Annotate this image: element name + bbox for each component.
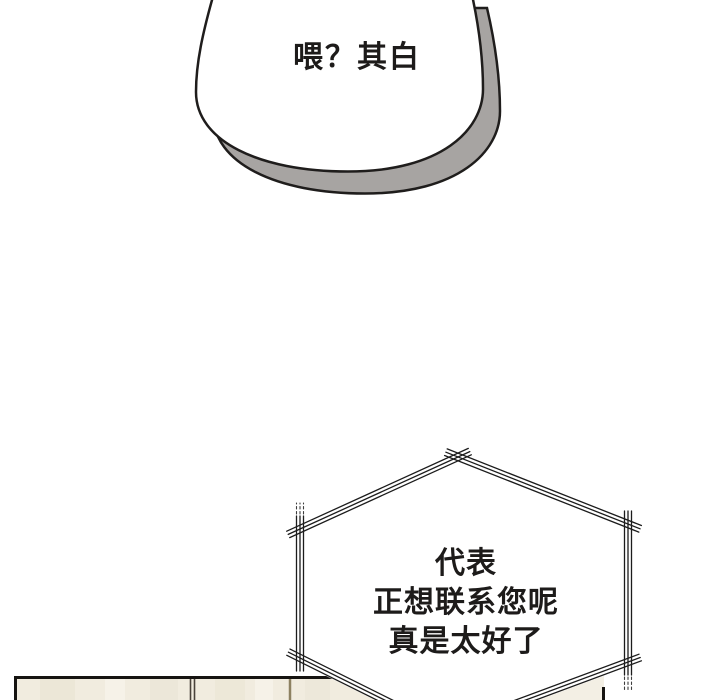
phone-speech-bubble xyxy=(196,0,500,194)
bubble-body xyxy=(196,0,483,172)
panel-texture xyxy=(105,679,125,700)
comic-page: 喂？其白 代表 正想联系您呢 真是太好了 xyxy=(0,0,720,700)
panel-texture xyxy=(255,679,273,700)
hex-text-line-1: 代表 xyxy=(286,544,646,583)
panel-texture xyxy=(215,679,245,700)
panel-texture xyxy=(305,679,330,700)
panel-texture xyxy=(150,679,178,700)
hex-text-line-2: 正想联系您呢 xyxy=(286,583,646,622)
hex-bubble-text: 代表 正想联系您呢 真是太好了 xyxy=(286,544,646,661)
phone-bubble-text: 喂？其白 xyxy=(197,39,517,77)
hex-text-line-3: 真是太好了 xyxy=(286,622,646,661)
panel-texture xyxy=(40,679,75,700)
